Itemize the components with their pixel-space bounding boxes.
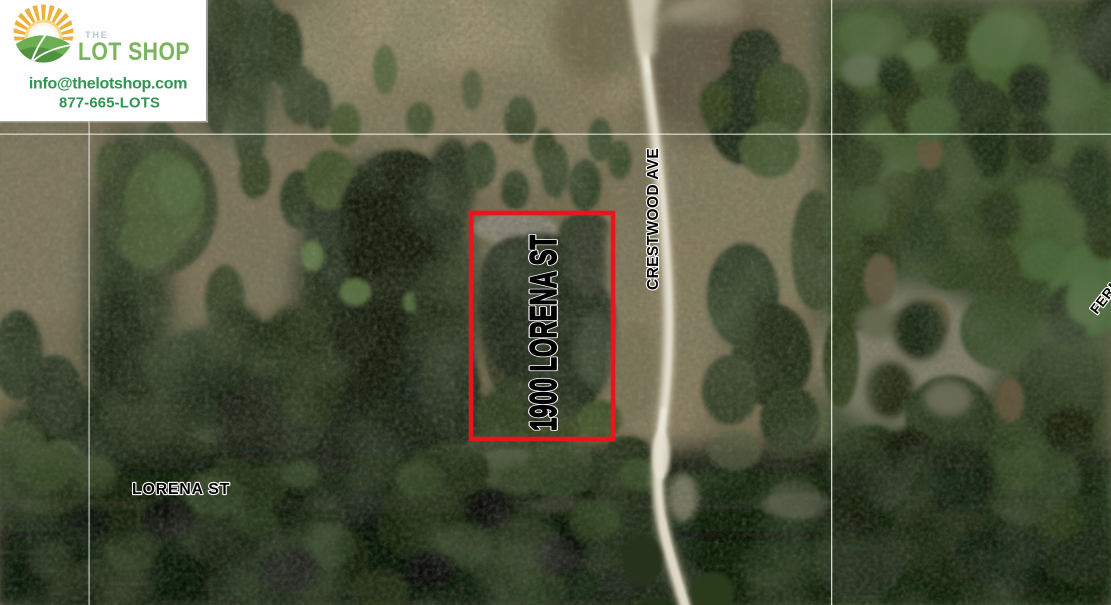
svg-text:info@thelotshop.com: info@thelotshop.com bbox=[29, 76, 187, 93]
svg-text:LORENA ST: LORENA ST bbox=[132, 481, 230, 498]
svg-text:1900 LORENA ST: 1900 LORENA ST bbox=[523, 235, 564, 431]
svg-text:LOT SHOP: LOT SHOP bbox=[78, 38, 190, 66]
svg-text:877-665-LOTS: 877-665-LOTS bbox=[59, 96, 160, 112]
svg-text:CRESTWOOD AVE: CRESTWOOD AVE bbox=[645, 148, 662, 290]
